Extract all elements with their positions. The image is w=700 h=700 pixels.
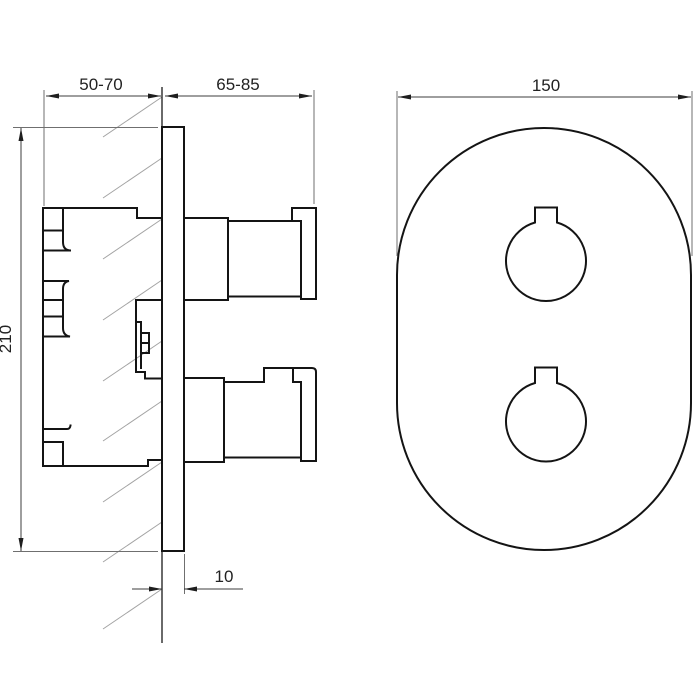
- trim-plate-side: [162, 127, 184, 551]
- dimension-plate-thickness: 10: [132, 554, 243, 594]
- dimension-label-plate-width: 150: [532, 76, 560, 95]
- dimension-recess-depth: 50-70: [44, 75, 161, 206]
- mounting-clip-top: [43, 209, 71, 251]
- technical-drawing: 50-70 65-85 210 10: [0, 0, 700, 700]
- arrowhead: [165, 94, 178, 99]
- dimension-label-plate-thickness: 10: [215, 567, 234, 586]
- arrowhead: [678, 95, 691, 100]
- upper-handle-side: [184, 208, 316, 300]
- arrowhead: [19, 128, 24, 141]
- arrowhead: [148, 94, 161, 99]
- arrowhead: [398, 95, 411, 100]
- dimension-label-recess-depth: 50-70: [79, 75, 122, 94]
- arrowhead: [184, 587, 197, 592]
- arrowhead: [46, 94, 59, 99]
- drawing-canvas: 50-70 65-85 210 10: [0, 0, 700, 700]
- concealed-valve-body: [43, 208, 162, 466]
- lower-handle-grip: [224, 368, 301, 458]
- dimension-plate-height: 210: [0, 128, 158, 552]
- arrowhead: [19, 538, 24, 551]
- dimension-protrusion: 65-85: [165, 75, 314, 204]
- mounting-clip-bottom: [43, 426, 71, 466]
- dimension-label-protrusion: 65-85: [216, 75, 259, 94]
- trim-plate-front: [397, 128, 691, 550]
- arrowhead: [299, 94, 312, 99]
- wall-hatching: [103, 97, 162, 629]
- upper-handle-grip: [228, 208, 316, 299]
- dimension-label-plate-height: 210: [0, 325, 15, 353]
- front-view: 150: [397, 76, 692, 550]
- upper-handle-sleeve: [184, 218, 228, 300]
- side-view: 50-70 65-85 210 10: [0, 75, 316, 643]
- mounting-clip-middle: [43, 281, 70, 337]
- lower-handle-side: [184, 368, 316, 462]
- lower-handle-sleeve: [184, 378, 224, 462]
